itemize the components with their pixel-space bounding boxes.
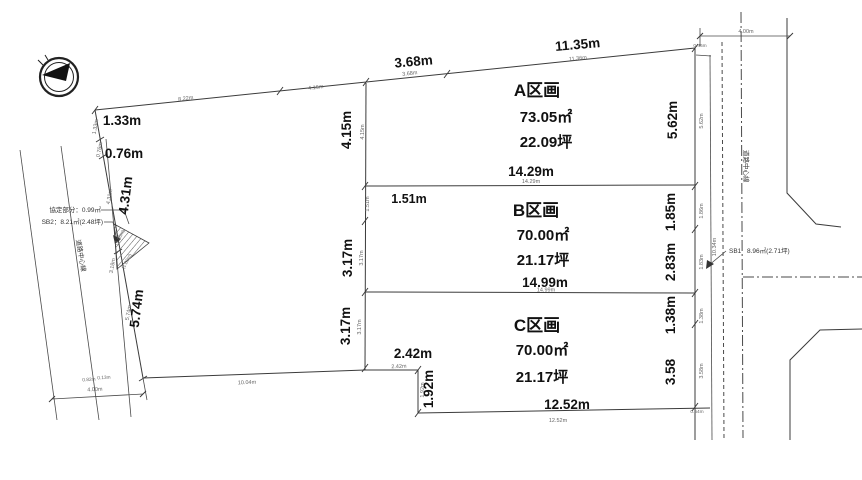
parcel-a-frontage-bold: 14.29m — [508, 164, 554, 179]
dim-east-5-bold: 3.58 — [663, 358, 678, 385]
parcel-b-frontage-small: 14.99m — [537, 288, 556, 294]
dim-top-seg4-bold: 11.35m — [555, 35, 601, 54]
dim-b-left2-bold: 3.17m — [340, 239, 355, 277]
dim-bottom-west-small: 10.04m — [238, 380, 257, 387]
east-road-lines — [696, 12, 862, 440]
dim-west-3-bold: 4.31m — [116, 176, 136, 216]
dim-b-left1-small: 1.51m — [365, 196, 371, 212]
land-plot-plan: A区画 73.05㎡ 22.09坪 14.29m 14.29m B区画 70.0… — [0, 0, 862, 480]
site-plan-svg: A区画 73.05㎡ 22.09坪 14.29m 14.29m B区画 70.0… — [0, 0, 862, 480]
parcel-c-area-m2: 70.00㎡ — [516, 341, 569, 359]
parcel-b-name-label: B区画 — [513, 201, 559, 220]
dim-b-left1-bold: 1.51m — [391, 192, 426, 206]
dim-east-3-bold: 2.83m — [663, 243, 678, 281]
dim-c-step-h-small: 2.42m — [391, 364, 407, 371]
north-arrow-icon — [38, 55, 78, 96]
parcel-c-area-tsubo: 21.17坪 — [516, 369, 569, 386]
parcel-c-frontage-small: 12.52m — [549, 418, 568, 424]
annotation-leaders — [101, 210, 726, 269]
dim-b-left2-small: 3.17m — [359, 250, 365, 266]
dim-c-left-small: 3.17m — [357, 319, 363, 335]
west-road-width-label: 4.00m — [87, 387, 103, 394]
dim-east-strip-small: 10.34m — [712, 237, 718, 256]
dim-east-3-small: 1.83m — [699, 254, 705, 270]
dim-c-step-v-small: 1.92m — [420, 382, 426, 398]
agreement-area-hatch — [114, 224, 149, 269]
agreement-area-note: 協定部分：0.99㎡ — [49, 205, 101, 214]
parcel-c-frontage-bold: 12.52m — [544, 397, 590, 412]
east-road-width-label: 4.00m — [738, 29, 754, 35]
dim-east-4-bold: 1.38m — [663, 296, 678, 334]
parcel-c-name-label: C区画 — [514, 316, 560, 335]
parcel-b-area-m2: 70.00㎡ — [517, 226, 570, 244]
parcel-b-area-tsubo: 21.17坪 — [517, 252, 570, 269]
parcel-a-area-tsubo: 22.09坪 — [520, 134, 573, 151]
dim-east-5-small: 3.58m — [699, 363, 705, 379]
dim-east-bottom-small: 0.54m — [690, 409, 703, 415]
dim-east-1-bold: 5.62m — [665, 101, 680, 139]
dim-top-seg3-bold: 3.68m — [394, 52, 433, 70]
parcel-a-name-label: A区画 — [514, 81, 560, 100]
dim-top-seg1-small: 8.22m — [178, 95, 194, 103]
dim-top-seg2-small: 4.16m — [308, 84, 324, 92]
parcel-a-frontage-small: 14.29m — [522, 179, 541, 185]
dim-west-corner-small-1: 0.82m — [82, 377, 96, 384]
dim-c-left-bold: 3.17m — [338, 307, 353, 345]
dim-west-4-small: 3.18m — [109, 257, 118, 274]
dim-east-4-small: 1.38m — [699, 308, 705, 324]
dim-east-2-small: 1.86m — [699, 203, 705, 219]
dim-top-seg4-small: 11.36m — [569, 55, 588, 63]
dim-west-2-bold: 0.76m — [105, 146, 143, 161]
setback1-area-note: 8.96㎡(2.71坪) — [747, 246, 790, 255]
east-road-centerline-label: 道路中心線 — [742, 150, 751, 183]
dim-east-corner-small: 0.46m — [693, 43, 706, 49]
dim-east-1-small: 5.62m — [699, 113, 705, 129]
dim-east-2-bold: 1.85m — [663, 193, 678, 231]
dim-west-corner-small-2: 0.13m — [97, 375, 111, 382]
dim-c-step-h-bold: 2.42m — [394, 346, 432, 361]
lot-boundary-lines — [95, 48, 710, 440]
setback2-note: SB2：8.21㎡(2.48坪) — [42, 217, 103, 226]
dim-west-1-bold: 1.33m — [103, 113, 141, 128]
setback1-tag: SB1 — [729, 248, 742, 255]
dim-a-left-bold: 4.15m — [339, 111, 354, 149]
parcel-a-area-m2: 73.05㎡ — [520, 108, 573, 126]
dim-a-left-small: 4.15m — [360, 124, 366, 140]
dim-west-3-small: 4.31m — [106, 188, 115, 205]
